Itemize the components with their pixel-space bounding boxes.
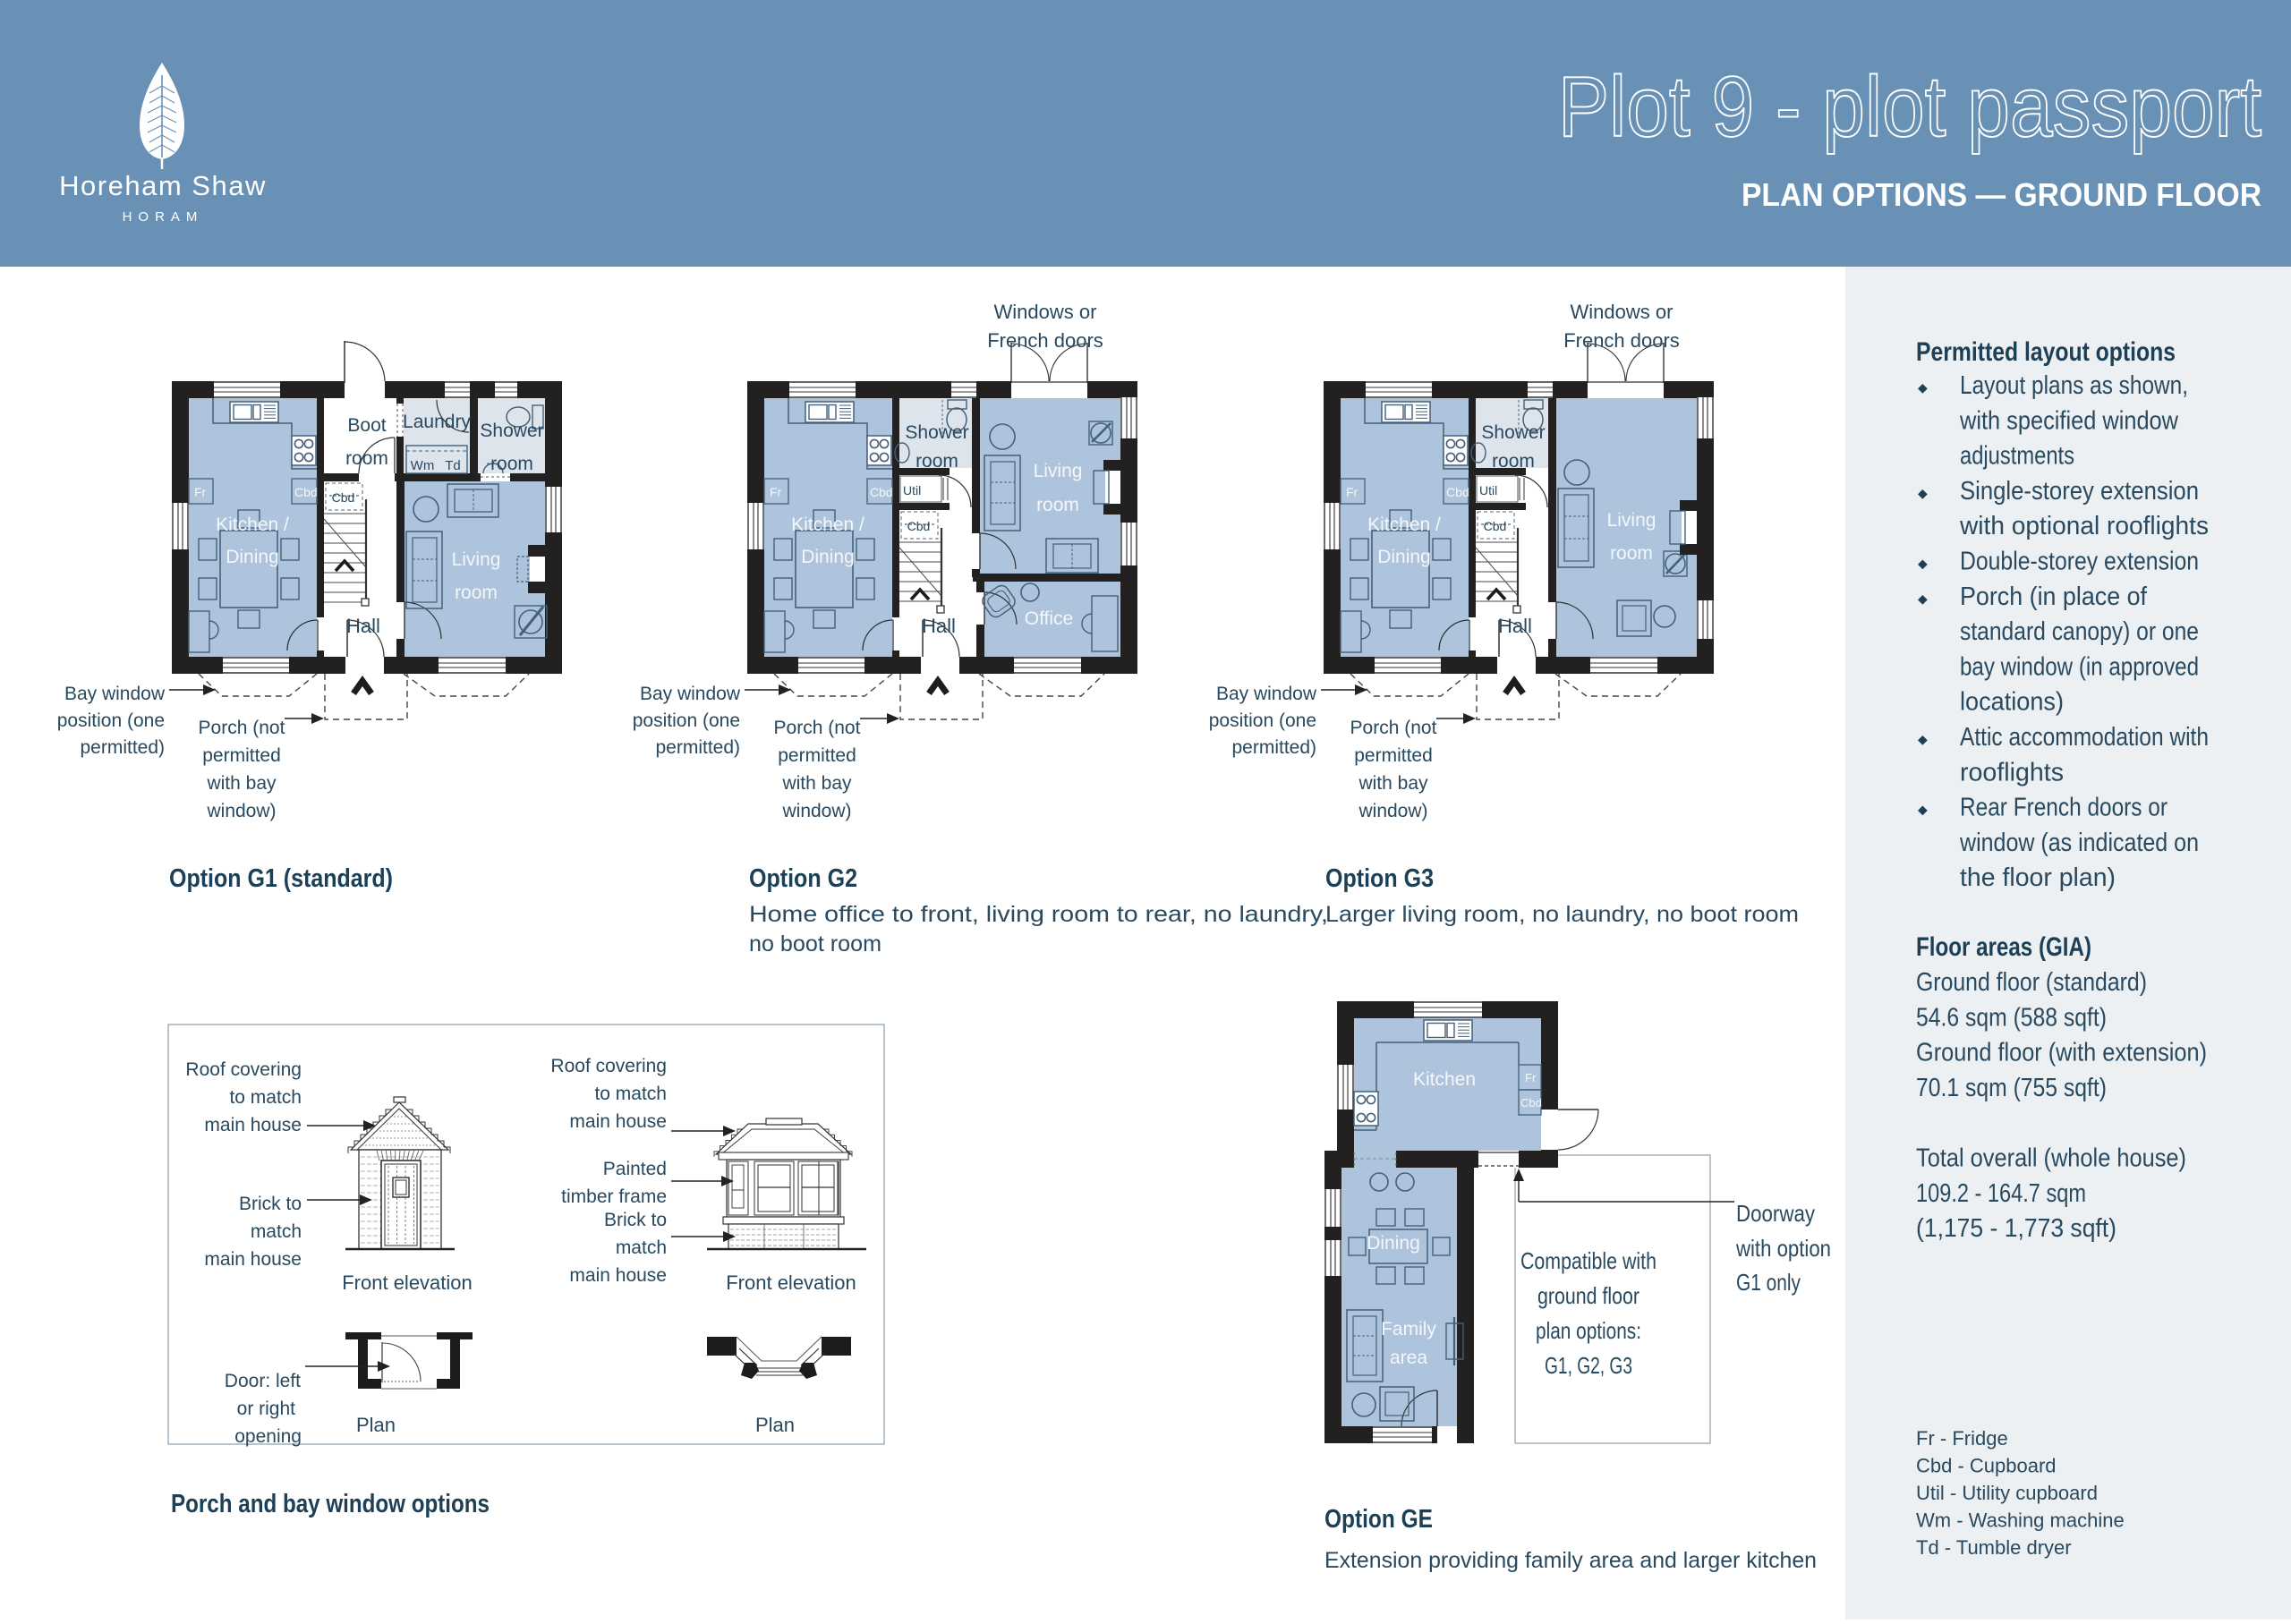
- svg-text:G1, G2, G3: G1, G2, G3: [1545, 1352, 1632, 1379]
- svg-text:Option GE: Option GE: [1324, 1505, 1433, 1534]
- svg-text:with specified window: with specified window: [1959, 406, 2179, 435]
- svg-text:PLAN OPTIONS — GROUND FLOOR: PLAN OPTIONS — GROUND FLOOR: [1742, 176, 2261, 213]
- svg-text:Roof covering: Roof covering: [185, 1059, 302, 1080]
- svg-text:permitted: permitted: [1354, 745, 1433, 766]
- svg-text:Fr: Fr: [770, 485, 782, 499]
- svg-text:70.1 sqm (755 sqft): 70.1 sqm (755 sqft): [1916, 1074, 2107, 1102]
- svg-text:Porch (in place of: Porch (in place of: [1960, 582, 2148, 611]
- svg-text:HORAM: HORAM: [123, 209, 204, 225]
- svg-text:room: room: [916, 451, 958, 472]
- svg-text:window): window): [206, 801, 276, 821]
- svg-text:window): window): [781, 801, 851, 821]
- svg-text:ground floor: ground floor: [1537, 1282, 1639, 1309]
- svg-text:Shower: Shower: [905, 422, 968, 443]
- svg-text:Family: Family: [1381, 1319, 1436, 1339]
- svg-text:◆: ◆: [1918, 591, 1928, 606]
- svg-text:Brick to: Brick to: [604, 1210, 667, 1230]
- svg-text:Double-storey extension: Double-storey extension: [1960, 548, 2199, 576]
- svg-text:Cbd: Cbd: [332, 490, 355, 505]
- svg-text:position (one: position (one: [633, 710, 740, 731]
- svg-text:(1,175 - 1,773 sqft): (1,175 - 1,773 sqft): [1916, 1214, 2116, 1243]
- svg-text:Td: Td: [445, 458, 461, 473]
- svg-text:match: match: [616, 1237, 667, 1258]
- svg-text:Kitchen: Kitchen: [1413, 1069, 1476, 1090]
- svg-text:Ground floor (with extension): Ground floor (with extension): [1916, 1039, 2207, 1067]
- svg-text:permitted): permitted): [655, 737, 740, 758]
- svg-text:room: room: [345, 448, 388, 469]
- svg-text:Windows or: Windows or: [1571, 301, 1674, 323]
- svg-text:rooflights: rooflights: [1960, 758, 2064, 786]
- svg-text:Home office to front, living r: Home office to front, living room to rea…: [749, 902, 1328, 927]
- svg-text:Plot 9 - plot passport: Plot 9 - plot passport: [1558, 59, 2261, 155]
- svg-text:Brick to: Brick to: [239, 1194, 302, 1214]
- svg-text:Porch (not: Porch (not: [199, 718, 285, 738]
- svg-text:Cbd: Cbd: [870, 485, 893, 499]
- svg-text:◆: ◆: [1918, 486, 1928, 500]
- svg-text:Attic accommodation with: Attic accommodation with: [1960, 723, 2209, 752]
- svg-text:Shower: Shower: [1481, 422, 1545, 443]
- svg-text:match: match: [251, 1221, 302, 1242]
- svg-text:Td - Tumble dryer: Td - Tumble dryer: [1916, 1536, 2072, 1559]
- svg-text:Fr: Fr: [1346, 485, 1358, 499]
- svg-text:Option G2: Option G2: [749, 864, 857, 893]
- svg-text:room: room: [1610, 543, 1653, 564]
- svg-text:◆: ◆: [1918, 380, 1928, 395]
- svg-text:Windows or: Windows or: [994, 301, 1097, 323]
- svg-text:Rear French doors or: Rear French doors or: [1960, 794, 2168, 822]
- svg-text:Porch (not: Porch (not: [1350, 718, 1437, 738]
- svg-text:Dining: Dining: [1367, 1233, 1420, 1254]
- svg-text:adjustments: adjustments: [1960, 442, 2074, 471]
- svg-text:area: area: [1390, 1348, 1427, 1368]
- svg-text:Fr: Fr: [194, 485, 207, 499]
- svg-text:Cbd: Cbd: [907, 519, 931, 533]
- svg-text:French doors: French doors: [987, 329, 1103, 352]
- svg-text:109.2 - 164.7 sqm: 109.2 - 164.7 sqm: [1916, 1179, 2086, 1208]
- svg-text:Shower: Shower: [480, 421, 543, 441]
- svg-text:Hall: Hall: [1498, 615, 1532, 637]
- svg-text:Cbd: Cbd: [1484, 519, 1507, 533]
- svg-text:◆: ◆: [1918, 732, 1928, 746]
- svg-text:Porch (not: Porch (not: [774, 718, 861, 738]
- svg-text:plan options:: plan options:: [1536, 1317, 1641, 1344]
- svg-text:bay window (in approved: bay window (in approved: [1960, 652, 2199, 681]
- svg-text:room: room: [1492, 451, 1535, 472]
- svg-text:Fr - Fridge: Fr - Fridge: [1916, 1427, 2008, 1450]
- svg-text:locations): locations): [1960, 688, 2064, 717]
- svg-text:main house: main house: [204, 1249, 302, 1270]
- svg-text:Layout plans as shown,: Layout plans as shown,: [1960, 371, 2188, 400]
- svg-text:main house: main house: [569, 1265, 667, 1286]
- svg-text:Plan: Plan: [755, 1414, 795, 1436]
- svg-text:Option G1 (standard): Option G1 (standard): [169, 864, 393, 893]
- svg-text:Door: left: Door: left: [225, 1371, 301, 1391]
- svg-text:Cbd - Cupboard: Cbd - Cupboard: [1916, 1455, 2057, 1477]
- svg-text:Hall: Hall: [346, 615, 380, 637]
- svg-text:to match: to match: [229, 1087, 302, 1108]
- svg-text:Painted: Painted: [603, 1159, 667, 1179]
- svg-text:G1 only: G1 only: [1736, 1269, 1801, 1296]
- svg-text:position (one: position (one: [57, 710, 165, 731]
- svg-text:room: room: [1036, 495, 1079, 515]
- svg-text:Bay window: Bay window: [64, 684, 166, 704]
- svg-text:Fr: Fr: [1525, 1071, 1537, 1084]
- svg-text:Ground floor (standard): Ground floor (standard): [1916, 968, 2147, 997]
- svg-text:Cbd: Cbd: [1520, 1096, 1542, 1110]
- svg-text:with bay: with bay: [781, 773, 852, 794]
- svg-text:standard canopy) or one: standard canopy) or one: [1960, 617, 2199, 646]
- svg-text:or right: or right: [237, 1399, 296, 1419]
- svg-text:Util: Util: [1479, 483, 1497, 497]
- svg-text:position (one: position (one: [1209, 710, 1316, 731]
- svg-text:Larger living room, no laundry: Larger living room, no laundry, no boot …: [1325, 902, 1799, 927]
- svg-text:with bay: with bay: [206, 773, 277, 794]
- svg-text:Extension providing family are: Extension providing family area and larg…: [1324, 1548, 1817, 1573]
- svg-text:Kitchen /: Kitchen /: [1367, 514, 1441, 535]
- svg-text:French doors: French doors: [1563, 329, 1680, 352]
- svg-text:with option: with option: [1735, 1235, 1831, 1262]
- svg-text:54.6 sqm (588 sqft): 54.6 sqm (588 sqft): [1916, 1003, 2107, 1032]
- svg-text:window): window): [1358, 801, 1427, 821]
- svg-text:Single-storey extension: Single-storey extension: [1960, 477, 2199, 506]
- svg-text:Bay window: Bay window: [640, 684, 741, 704]
- svg-text:main house: main house: [204, 1115, 302, 1135]
- svg-text:room: room: [490, 454, 533, 474]
- svg-text:Util: Util: [903, 483, 921, 497]
- svg-text:Option G3: Option G3: [1325, 864, 1434, 893]
- svg-text:Hall: Hall: [922, 615, 956, 637]
- svg-text:no boot room: no boot room: [749, 931, 881, 957]
- svg-text:Cbd: Cbd: [1446, 485, 1469, 499]
- svg-text:permitted): permitted): [1231, 737, 1316, 758]
- svg-text:Boot: Boot: [347, 415, 386, 436]
- svg-text:the floor plan): the floor plan): [1960, 863, 2116, 892]
- svg-text:Bay window: Bay window: [1216, 684, 1317, 704]
- svg-text:Roof covering: Roof covering: [550, 1056, 667, 1076]
- svg-text:Wm - Washing machine: Wm - Washing machine: [1916, 1509, 2125, 1532]
- svg-text:Kitchen /: Kitchen /: [791, 514, 864, 535]
- svg-text:◆: ◆: [1918, 557, 1928, 571]
- svg-text:Laundry: Laundry: [403, 412, 471, 432]
- svg-text:Total overall (whole house): Total overall (whole house): [1916, 1144, 2186, 1173]
- svg-text:opening: opening: [234, 1426, 302, 1447]
- svg-text:Front elevation: Front elevation: [726, 1271, 856, 1294]
- svg-text:Doorway: Doorway: [1736, 1200, 1815, 1227]
- svg-text:Dining: Dining: [801, 547, 855, 567]
- svg-text:room: room: [455, 582, 498, 603]
- svg-text:Util - Utility cupboard: Util - Utility cupboard: [1916, 1482, 2098, 1504]
- svg-text:◆: ◆: [1918, 803, 1928, 817]
- svg-text:Kitchen /: Kitchen /: [216, 514, 289, 535]
- svg-text:permitted: permitted: [778, 745, 856, 766]
- svg-text:Cbd: Cbd: [294, 485, 318, 499]
- svg-text:Permitted layout options: Permitted layout options: [1916, 337, 2176, 367]
- svg-text:Office: Office: [1025, 608, 1073, 629]
- svg-text:Living: Living: [1607, 510, 1657, 531]
- svg-text:to match: to match: [594, 1084, 667, 1104]
- svg-text:permitted: permitted: [202, 745, 281, 766]
- svg-text:with optional rooflights: with optional rooflights: [1959, 512, 2209, 540]
- svg-text:with bay: with bay: [1358, 773, 1428, 794]
- svg-text:Wm: Wm: [411, 458, 435, 473]
- svg-text:Living: Living: [452, 549, 501, 570]
- svg-text:Dining: Dining: [226, 547, 279, 567]
- svg-text:window (as indicated on: window (as indicated on: [1959, 829, 2199, 857]
- svg-text:permitted): permitted): [80, 737, 165, 758]
- svg-text:Horeham Shaw: Horeham Shaw: [59, 170, 267, 201]
- svg-text:Floor areas (GIA): Floor areas (GIA): [1916, 932, 2091, 962]
- svg-text:timber frame: timber frame: [561, 1186, 667, 1207]
- svg-text:main house: main house: [569, 1111, 667, 1132]
- svg-text:Living: Living: [1034, 461, 1083, 481]
- svg-text:Porch and bay window options: Porch and bay window options: [171, 1490, 490, 1518]
- svg-text:Dining: Dining: [1377, 547, 1431, 567]
- svg-text:Compatible with: Compatible with: [1520, 1247, 1657, 1274]
- svg-text:Plan: Plan: [356, 1414, 396, 1436]
- svg-text:Front elevation: Front elevation: [342, 1271, 473, 1294]
